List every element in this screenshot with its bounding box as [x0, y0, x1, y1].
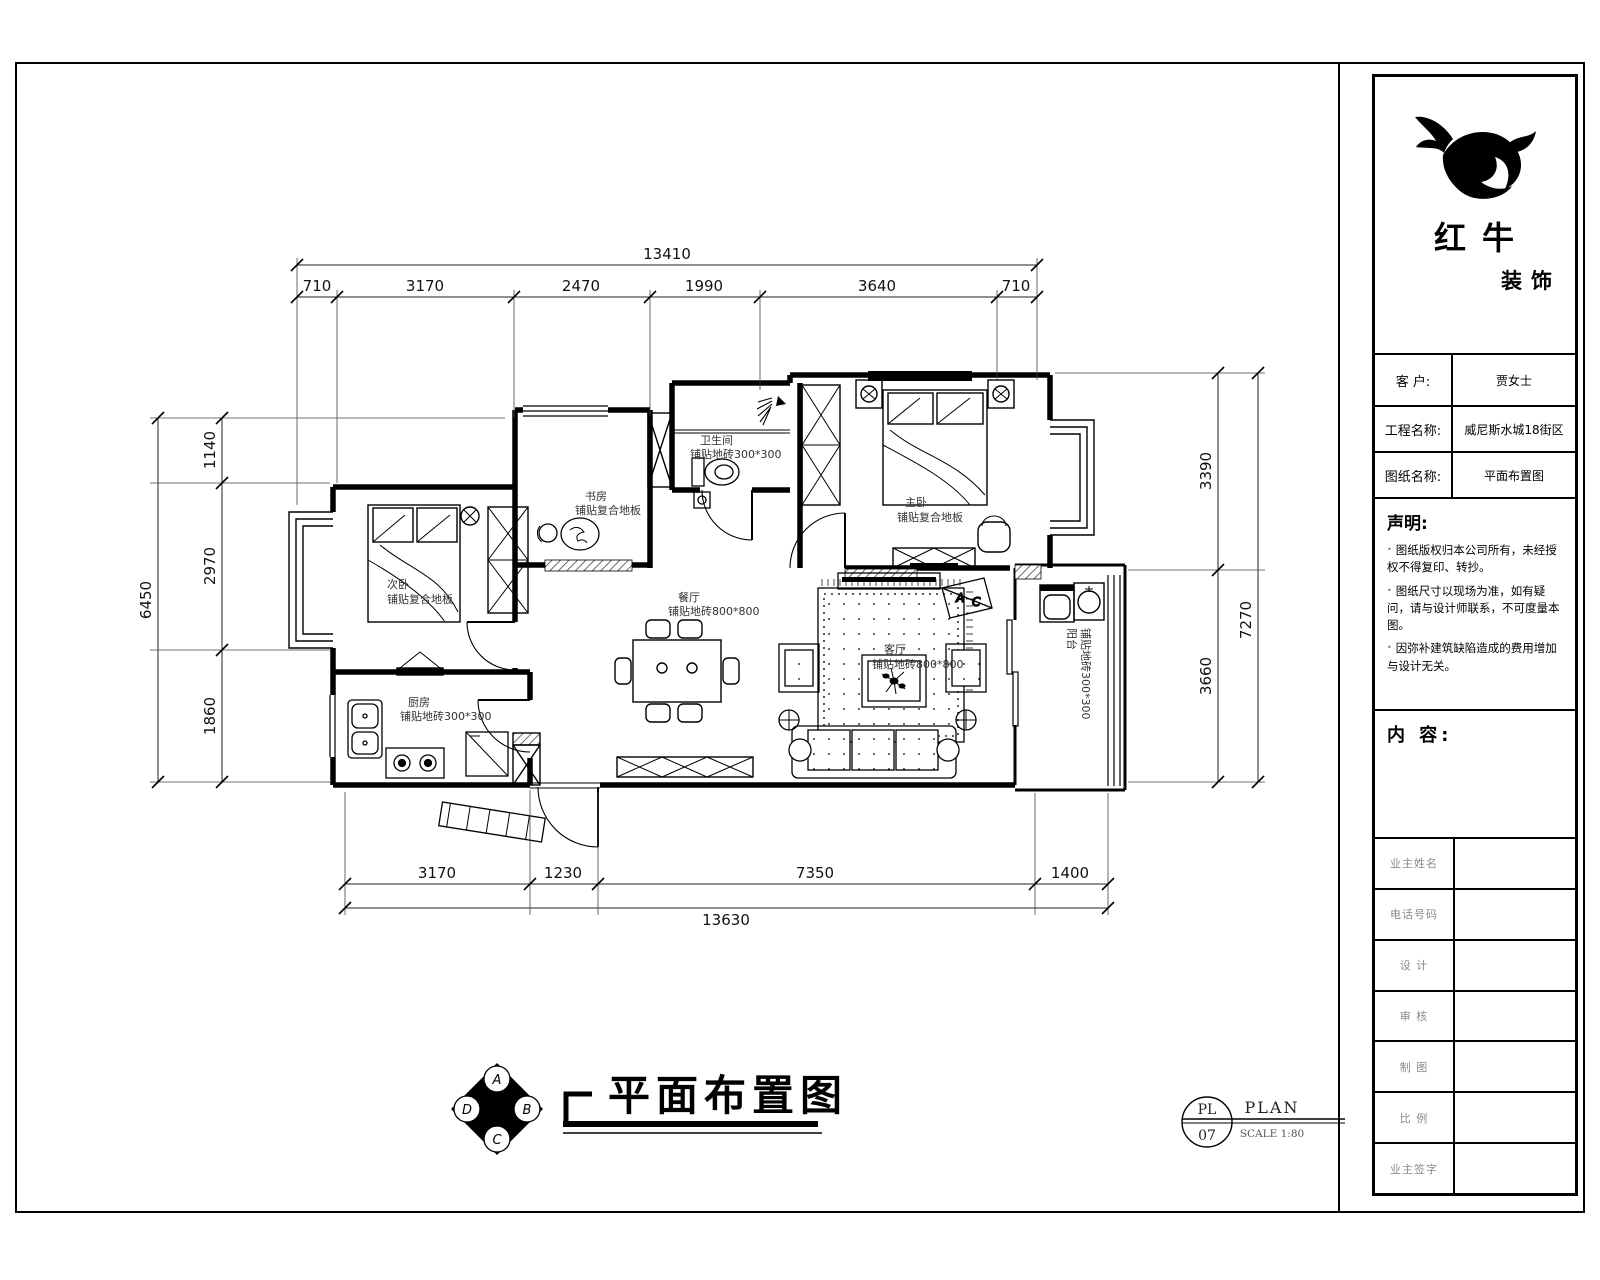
ref-scale: SCALE 1:80 [1240, 1128, 1304, 1140]
sign-row-draft: 制 图 [1375, 1042, 1575, 1093]
field-drawing: 图纸名称: 平面布置图 [1375, 453, 1575, 499]
sign-value-cell [1455, 1093, 1575, 1142]
statement-item: 图纸尺寸以现场为准，如有疑问，请与设计师联系，不可度量本图。 [1387, 583, 1567, 635]
dim-left-seg: 2970 [201, 547, 219, 585]
room-name: 次卧 [387, 577, 409, 591]
ref-number: 07 [1198, 1128, 1216, 1144]
statement-item: 图纸版权归本公司所有，未经授权不得复印、转抄。 [1387, 542, 1567, 577]
title-block: 红牛 装饰 客 户: 贾女士 工程名称: 威尼斯水城18街区 图纸名称: 平面布… [1372, 74, 1578, 1196]
sign-row-design: 设 计 [1375, 941, 1575, 992]
sign-label: 电话号码 [1375, 890, 1455, 939]
sign-value-cell [1455, 890, 1575, 939]
field-project-label: 工程名称: [1375, 407, 1453, 451]
room-finish: 铺贴地砖800*800 [668, 604, 760, 618]
dim-top-seg: 710 [303, 277, 332, 295]
dim-bottom-seg: 7350 [796, 864, 834, 882]
dimension-labels: 13410 710 3170 2470 1990 3640 710 6450 1… [137, 245, 1255, 929]
compass-b: B [523, 1103, 532, 1118]
dim-top-seg: 3640 [858, 277, 896, 295]
compass-c: C [492, 1133, 502, 1148]
dim-right-seg: 3390 [1197, 452, 1215, 490]
compass-d: D [462, 1103, 472, 1118]
room-finish: 铺贴复合地板 [387, 592, 453, 606]
sign-label: 制 图 [1375, 1042, 1455, 1091]
drawing-title-text: 平面布置图 [608, 1071, 848, 1120]
living-room-furniture [779, 573, 986, 778]
dim-bottom-seg: 3170 [418, 864, 456, 882]
company-logo-icon [1413, 103, 1537, 203]
compass: A B C D [451, 1063, 543, 1155]
company-subname: 装饰 [1501, 265, 1575, 295]
dim-left-total: 6450 [137, 581, 155, 619]
shaft-column [513, 413, 672, 785]
cad-sheet: { "title_block": { "logo": {"name": "红牛"… [0, 0, 1600, 1280]
sign-value-cell [1455, 839, 1575, 888]
dining-furniture [615, 620, 753, 777]
ref-bubble: PL 07 PLAN SCALE 1:80 [1182, 1097, 1345, 1147]
room-finish: 铺贴复合地板 [897, 510, 963, 524]
content-section: 内 容: [1375, 711, 1575, 839]
ac-letter-a: A [955, 591, 964, 605]
dim-right-seg: 3660 [1197, 657, 1215, 695]
statement-list: 图纸版权归本公司所有，未经授权不得复印、转抄。 图纸尺寸以现场为准，如有疑问，请… [1387, 542, 1567, 675]
ref-code: PL [1198, 1102, 1217, 1118]
sign-row-owner-name: 业主姓名 [1375, 839, 1575, 890]
company-logo-cell: 红牛 装饰 [1375, 77, 1575, 355]
sign-label: 业主姓名 [1375, 839, 1455, 888]
sign-row-review: 审 核 [1375, 992, 1575, 1043]
ac-letter-c: C [972, 595, 981, 609]
dimension-lines [150, 258, 1265, 915]
field-customer-value: 贾女士 [1453, 355, 1575, 405]
field-drawing-value: 平面布置图 [1453, 453, 1575, 497]
room-name: 客厅 [884, 642, 906, 656]
balcony-fixtures [1040, 583, 1104, 622]
sign-value-cell [1455, 992, 1575, 1041]
sign-value-cell [1455, 1042, 1575, 1091]
dim-top-total: 13410 [643, 245, 691, 263]
room-name: 卫生间 [700, 433, 733, 447]
sign-label: 设 计 [1375, 941, 1455, 990]
dim-top-seg: 1990 [685, 277, 723, 295]
compass-a: A [492, 1073, 502, 1088]
dim-top-seg: 710 [1002, 277, 1031, 295]
room-name: 餐厅 [678, 590, 700, 604]
room-name: 主卧 [905, 496, 927, 509]
statement-title: 声明: [1387, 509, 1567, 534]
ref-label: PLAN [1245, 1098, 1300, 1117]
dim-left-seg: 1140 [201, 431, 219, 469]
company-name: 红牛 [1434, 213, 1530, 259]
sign-row-phone: 电话号码 [1375, 890, 1575, 941]
field-project-value: 威尼斯水城18街区 [1453, 407, 1575, 451]
room-name: 厨房 [408, 696, 430, 709]
field-customer: 客 户: 贾女士 [1375, 355, 1575, 407]
master-bedroom-furniture [802, 380, 1014, 568]
sign-label: 比 例 [1375, 1093, 1455, 1142]
sign-value-cell [1455, 941, 1575, 990]
room-finish: 铺贴复合地板 [575, 503, 641, 517]
field-project: 工程名称: 威尼斯水城18街区 [1375, 407, 1575, 453]
sign-label: 业主签字 [1375, 1144, 1455, 1193]
sign-row-owner-sign: 业主签字 [1375, 1144, 1575, 1193]
content-label: 内 容: [1387, 725, 1452, 746]
room-name: 阳台 [1065, 628, 1079, 650]
sign-label: 审 核 [1375, 992, 1455, 1041]
field-customer-label: 客 户: [1375, 355, 1453, 405]
room-name: 书房 [585, 490, 607, 503]
sign-value-cell [1455, 1144, 1575, 1193]
dim-bottom-seg: 1230 [544, 864, 582, 882]
field-drawing-label: 图纸名称: [1375, 453, 1453, 497]
dim-top-seg: 2470 [562, 277, 600, 295]
dim-bottom-total: 13630 [702, 911, 750, 929]
statement-section: 声明: 图纸版权归本公司所有，未经授权不得复印、转抄。 图纸尺寸以现场为准，如有… [1375, 499, 1575, 711]
room-finish: 铺贴地砖300*300 [400, 709, 492, 723]
sign-row-scale: 比 例 [1375, 1093, 1575, 1144]
dim-top-seg: 3170 [406, 277, 444, 295]
signature-table: 业主姓名 电话号码 设 计 审 核 制 图 比 例 业主签字 [1375, 839, 1575, 1193]
room-finish: 铺贴地砖300*300 [690, 447, 782, 461]
dim-bottom-seg: 1400 [1051, 864, 1089, 882]
dim-right-total: 7270 [1237, 601, 1255, 639]
drawing-title: 平面布置图 [563, 1071, 848, 1133]
dim-left-seg: 1860 [201, 697, 219, 735]
floor-plan-drawing: A C 次卧 铺贴复合地板 书房 铺贴复合地板 卫生间 铺贴地砖300*300 … [0, 0, 1345, 1280]
room-finish: 铺贴地砖800*800 [872, 657, 964, 671]
room-finish: 铺贴地砖300*300 [1079, 628, 1093, 720]
statement-item: 因弥补建筑缺陷造成的费用增加与设计无关。 [1387, 640, 1567, 675]
study-furniture [537, 518, 599, 550]
